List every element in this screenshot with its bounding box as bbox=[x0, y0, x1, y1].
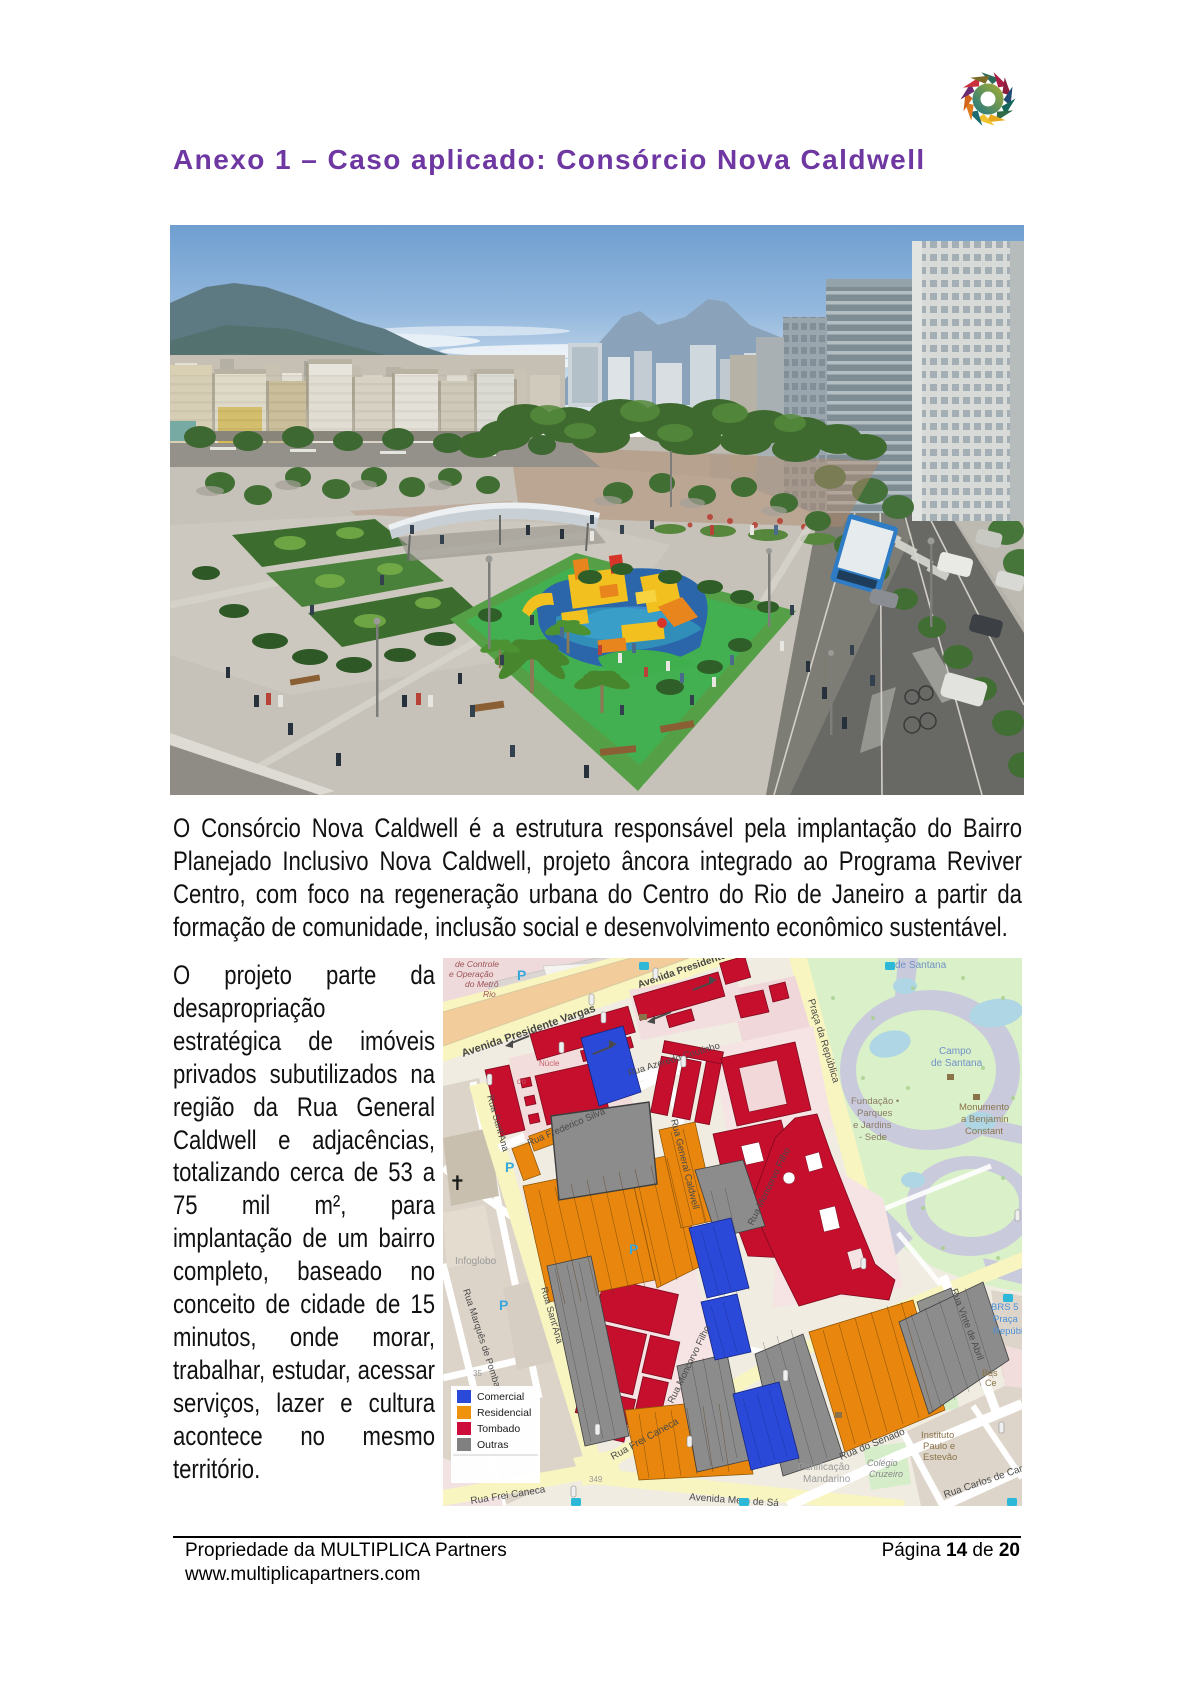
svg-text:e Jardins: e Jardins bbox=[853, 1120, 892, 1131]
svg-text:35: 35 bbox=[473, 1369, 482, 1378]
svg-text:de Santana: de Santana bbox=[895, 960, 947, 971]
svg-text:Repúbl: Repúbl bbox=[993, 1326, 1022, 1337]
svg-text:P: P bbox=[505, 1159, 514, 1175]
svg-text:✝: ✝ bbox=[449, 1173, 466, 1195]
svg-text:Infoglobo: Infoglobo bbox=[455, 1256, 497, 1267]
svg-text:do: do bbox=[517, 1077, 526, 1086]
svg-text:- Sede: - Sede bbox=[859, 1132, 887, 1143]
svg-text:P: P bbox=[629, 1241, 638, 1257]
svg-text:Panificação: Panificação bbox=[798, 1462, 850, 1473]
svg-text:P: P bbox=[499, 1297, 508, 1313]
svg-text:P: P bbox=[517, 967, 526, 983]
svg-text:Paulo e: Paulo e bbox=[923, 1441, 955, 1452]
svg-text:Praça: Praça bbox=[993, 1314, 1019, 1325]
svg-text:de Santana: de Santana bbox=[931, 1058, 983, 1069]
svg-text:do Metrô: do Metrô bbox=[465, 979, 499, 989]
svg-text:a Benjamin: a Benjamin bbox=[961, 1114, 1009, 1125]
svg-text:Bes: Bes bbox=[982, 1368, 998, 1378]
svg-text:Campo: Campo bbox=[939, 1046, 972, 1057]
svg-text:Colégio: Colégio bbox=[867, 1458, 898, 1468]
svg-text:Parques: Parques bbox=[857, 1108, 893, 1119]
svg-text:Residencial: Residencial bbox=[477, 1407, 531, 1419]
svg-text:Tombado: Tombado bbox=[477, 1423, 520, 1435]
svg-text:Estevão: Estevão bbox=[923, 1452, 957, 1463]
svg-text:Comercial: Comercial bbox=[477, 1391, 524, 1403]
svg-text:e Operação: e Operação bbox=[449, 969, 494, 979]
svg-text:BRS 5: BRS 5 bbox=[991, 1302, 1018, 1313]
svg-text:Ce: Ce bbox=[985, 1378, 997, 1388]
svg-text:de Controle: de Controle bbox=[455, 959, 499, 969]
svg-text:Rio: Rio bbox=[483, 989, 496, 999]
svg-text:Monumento: Monumento bbox=[959, 1102, 1009, 1113]
svg-text:349: 349 bbox=[589, 1475, 603, 1484]
svg-text:Outras: Outras bbox=[477, 1439, 509, 1451]
svg-text:Cruzeiro: Cruzeiro bbox=[869, 1469, 903, 1479]
svg-text:Instituto: Instituto bbox=[921, 1430, 954, 1441]
svg-text:Fundação •: Fundação • bbox=[851, 1096, 899, 1107]
svg-text:Mandarino: Mandarino bbox=[803, 1474, 851, 1485]
svg-text:Constant: Constant bbox=[965, 1126, 1003, 1137]
svg-text:Núcle: Núcle bbox=[539, 1059, 560, 1068]
